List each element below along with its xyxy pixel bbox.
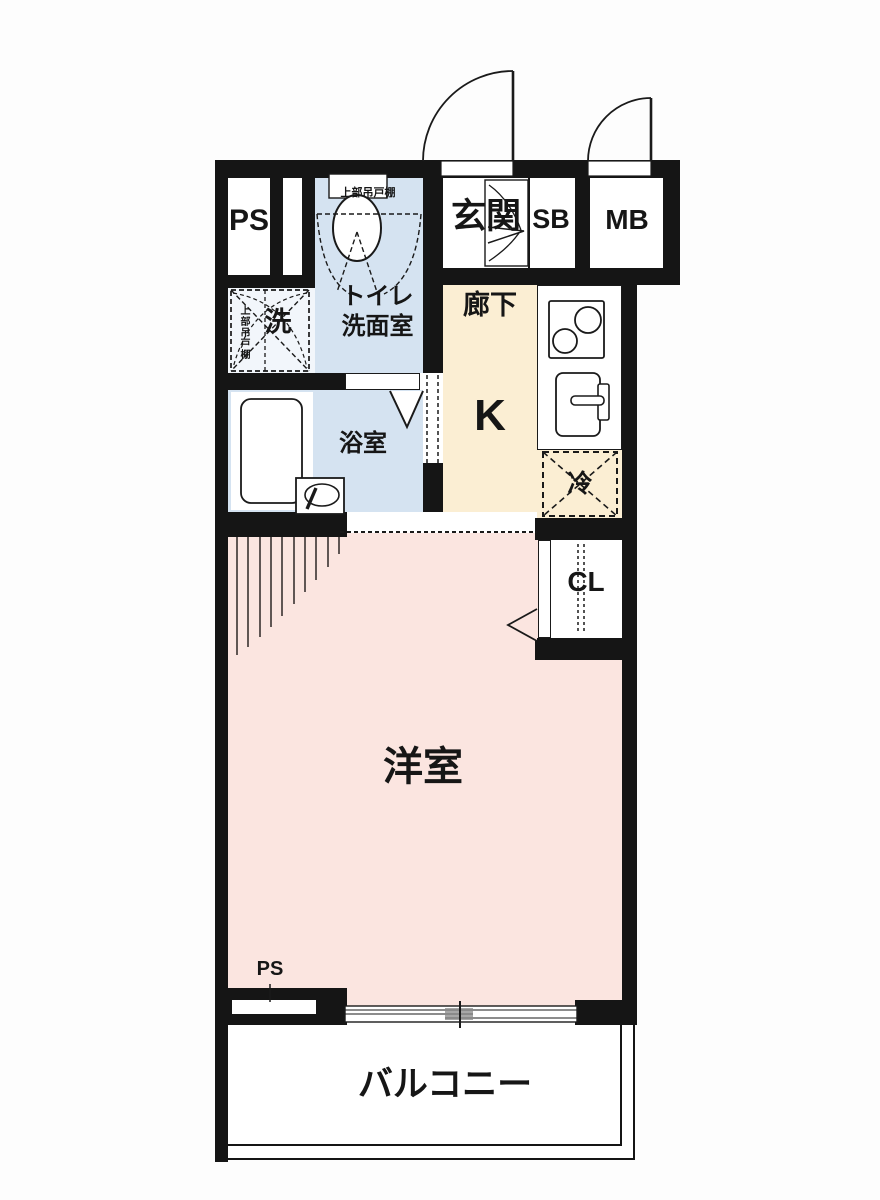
label-toilet-washroom-1: トイレ [325,284,430,310]
hatch-lines-icon [237,537,339,655]
entrance-door-arc-icon [423,71,513,161]
entrance-threshold [441,161,513,176]
closet-arrow-icon [508,609,537,641]
label-shoe-box: SB [527,205,575,235]
label-entrance: 玄関 [436,198,536,237]
label-laundry-shelf: 上部吊戸棚 [238,296,249,368]
stove-burner2-icon [553,329,577,353]
label-closet: CL [560,567,612,598]
label-washroom-shelf: 上部吊戸棚 [312,187,424,199]
label-laundry: 洗 [252,308,304,338]
label-kitchen: K [443,392,537,440]
label-balcony: バルコニー [300,1066,590,1105]
label-bathroom: 浴室 [330,431,396,457]
mb-door-arc-icon [588,98,651,161]
bathtub-icon [241,399,302,503]
label-ps-bottom: PS [247,958,293,980]
label-meter-box: MB [592,205,662,236]
bath-fold-door-icon [390,391,423,427]
fixtures-overlay [0,0,880,1200]
label-toilet-washroom-2: 洗面室 [325,314,430,340]
label-western-room: 洋室 [338,745,508,789]
floor-plan: PS 上部吊戸棚 トイレ 洗面室 玄関 SB MB 廊下 K 洗 上部吊戸棚 浴… [0,0,880,1200]
corridor-door-dashed-icon [427,375,438,463]
toilet-dash-arc-right-icon [384,214,421,294]
toilet-bowl-icon [333,195,381,261]
mb-threshold [588,161,651,176]
label-refrigerator: 冷 [563,471,597,499]
sink-faucet-lever-icon [571,396,604,405]
stove-burner1-icon [575,307,601,333]
label-corridor: 廊下 [443,291,537,321]
label-ps-top: PS [224,204,274,237]
